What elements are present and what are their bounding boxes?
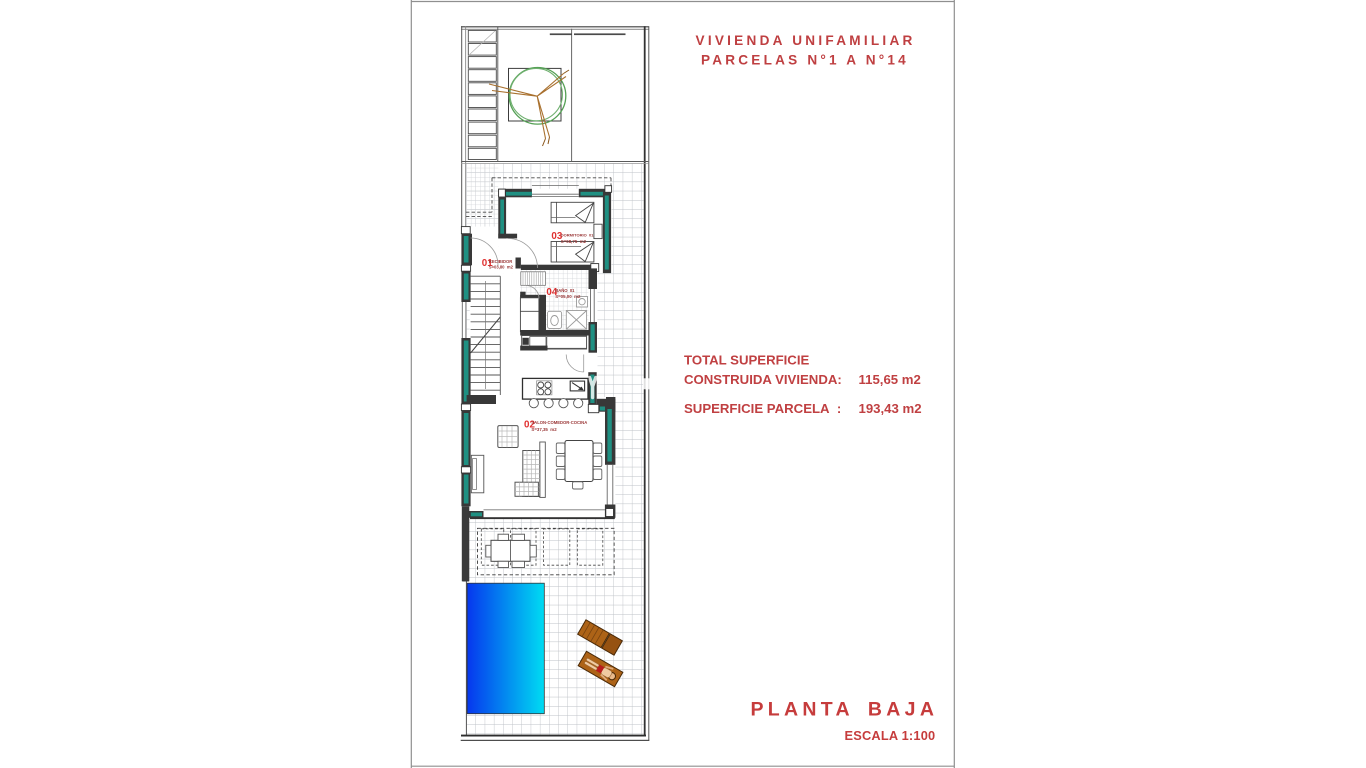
svg-text:PARCELAS N°1 A N°14: PARCELAS N°1 A N°14 [701,53,909,68]
svg-text:CONSTRUIDA VIVIENDA:: CONSTRUIDA VIVIENDA: [684,372,842,387]
svg-text:VIVIENDA UNIFAMILIAR: VIVIENDA UNIFAMILIAR [696,33,916,48]
svg-text:SUPERFICIE PARCELA :: SUPERFICIE PARCELA : [684,401,841,416]
svg-text:RECIBIDOR: RECIBIDOR [489,259,513,264]
svg-text:S=03,80 m2: S=03,80 m2 [489,265,514,270]
svg-text:S=37,35 m2: S=37,35 m2 [531,427,557,432]
svg-text:TOTAL SUPERFICIE: TOTAL SUPERFICIE [684,353,809,368]
svg-text:115,65 m2: 115,65 m2 [859,372,921,387]
svg-text:DORMITORIO 01: DORMITORIO 01 [561,233,594,238]
svg-text:S=08,75 m2: S=08,75 m2 [561,239,587,244]
svg-text:ESCALA 1:100: ESCALA 1:100 [845,728,936,743]
svg-text:S=05,00 m2: S=05,00 m2 [555,294,581,299]
svg-text:BAÑO 01: BAÑO 01 [555,288,575,293]
svg-text:PLANTA BAJA: PLANTA BAJA [751,699,939,721]
svg-text:193,43 m2: 193,43 m2 [859,401,922,416]
svg-text:SALON-COMEDOR-COCINA: SALON-COMEDOR-COCINA [531,420,587,425]
